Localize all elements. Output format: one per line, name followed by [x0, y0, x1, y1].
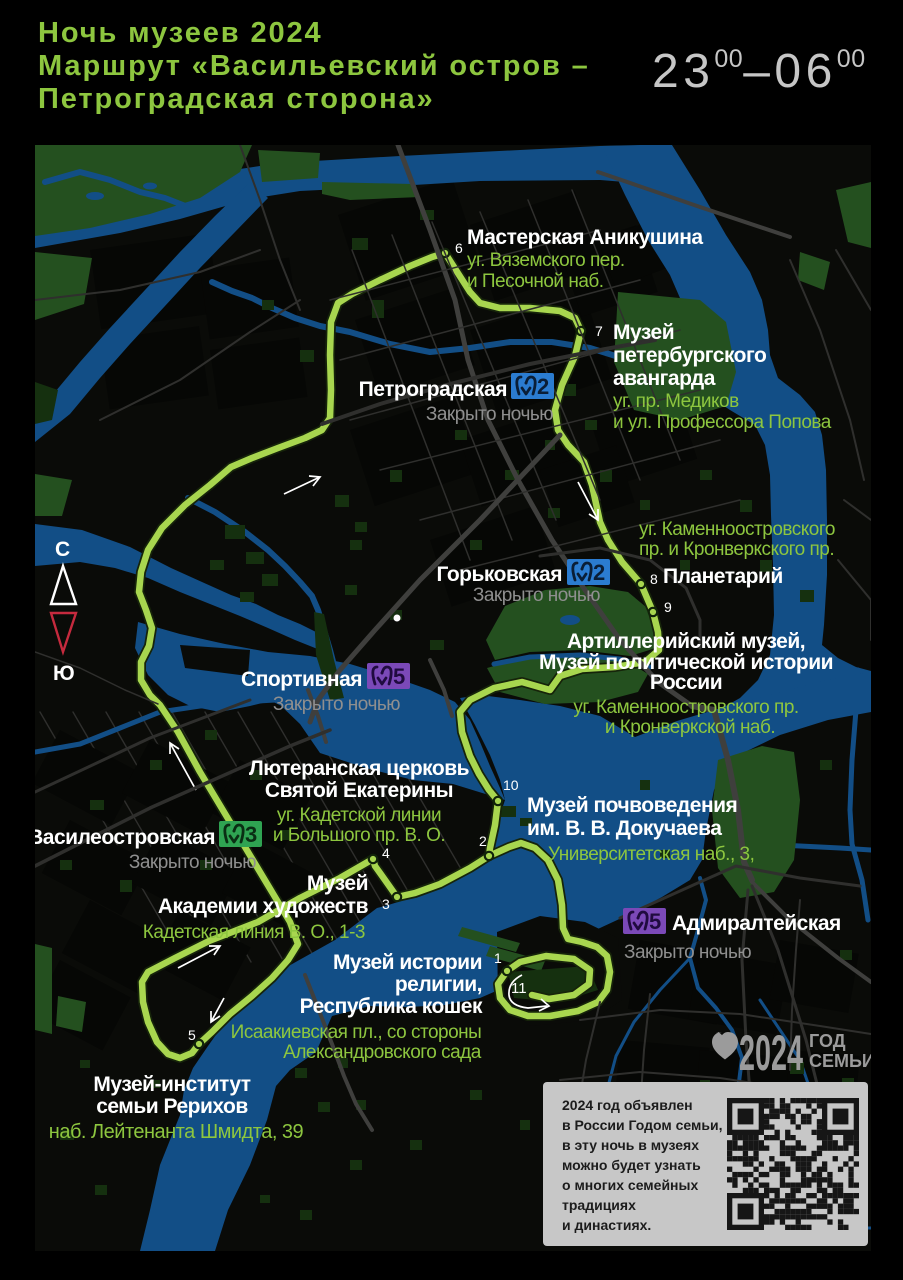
svg-text:6: 6 — [455, 240, 463, 256]
svg-text:Закрыто ночью: Закрыто ночью — [624, 942, 751, 963]
svg-text:петербургского: петербургского — [613, 344, 766, 367]
svg-text:10: 10 — [503, 777, 519, 793]
svg-text:СЕМЬИ: СЕМЬИ — [809, 1051, 871, 1071]
svg-text:Святой Екатерины: Святой Екатерины — [265, 779, 453, 802]
svg-text:России: России — [650, 671, 722, 694]
svg-text:в эту ночь в музеях: в эту ночь в музеях — [562, 1137, 699, 1153]
svg-text:и Песочной наб.: и Песочной наб. — [467, 271, 604, 292]
svg-text:авангарда: авангарда — [613, 367, 716, 390]
svg-text:7: 7 — [595, 323, 603, 339]
svg-text:уг. Каменноостровского пр.: уг. Каменноостровского пр. — [573, 697, 798, 718]
svg-text:и Большого пр. В. О.: и Большого пр. В. О. — [273, 825, 445, 846]
svg-text:уг. Вяземского пер.: уг. Вяземского пер. — [467, 250, 625, 271]
svg-text:Музей: Музей — [613, 321, 674, 344]
svg-text:11: 11 — [511, 980, 527, 997]
svg-text:уг. Каменноостровского: уг. Каменноостровского — [639, 519, 835, 540]
svg-text:Лютеранская церковь: Лютеранская церковь — [249, 757, 470, 780]
svg-text:ГОД: ГОД — [809, 1031, 846, 1051]
svg-text:Адмиралтейская: Адмиралтейская — [672, 912, 841, 935]
svg-text:Мастерская Аникушина: Мастерская Аникушина — [467, 226, 703, 249]
svg-text:о многих семейных: о многих семейных — [562, 1177, 698, 1193]
svg-text:Кадетская линия В. О., 1-3: Кадетская линия В. О., 1-3 — [143, 922, 365, 943]
svg-text:Горьковская: Горьковская — [437, 563, 563, 586]
svg-text:2: 2 — [479, 833, 487, 849]
svg-text:Закрыто ночью: Закрыто ночью — [473, 585, 600, 606]
svg-text:5: 5 — [649, 909, 661, 934]
svg-text:Университетская наб., 3,: Университетская наб., 3, — [548, 844, 754, 865]
svg-text:5: 5 — [393, 664, 405, 689]
svg-text:уг. пр. Медиков: уг. пр. Медиков — [613, 391, 739, 412]
svg-text:религии,: религии, — [395, 973, 482, 996]
svg-text:Музей почвоведения: Музей почвоведения — [527, 794, 737, 817]
svg-text:Закрыто ночью: Закрыто ночью — [129, 852, 256, 873]
svg-text:им. В. В. Докучаева: им. В. В. Докучаева — [527, 817, 722, 840]
svg-text:Исаакиевская пл., со стороны: Исаакиевская пл., со стороны — [231, 1022, 482, 1043]
svg-text:Александровского сада: Александровского сада — [283, 1042, 482, 1063]
svg-text:9: 9 — [664, 599, 672, 615]
svg-text:наб. Лейтенанта Шмидта, 39: наб. Лейтенанта Шмидта, 39 — [49, 1121, 304, 1143]
svg-text:и Кронверкской наб.: и Кронверкской наб. — [605, 717, 775, 738]
svg-text:в России Годом семьи,: в России Годом семьи, — [562, 1117, 722, 1133]
svg-text:5: 5 — [188, 1027, 196, 1043]
svg-text:Артиллерийский музей,: Артиллерийский музей, — [567, 630, 805, 653]
svg-text:3: 3 — [382, 896, 390, 912]
svg-text:Музей истории: Музей истории — [333, 951, 482, 974]
svg-text:4: 4 — [382, 845, 390, 861]
svg-text:традициях: традициях — [562, 1197, 636, 1213]
svg-text:2: 2 — [593, 560, 605, 585]
svg-text:8: 8 — [650, 571, 658, 587]
svg-text:С: С — [55, 538, 70, 561]
svg-text:Музей-институт: Музей-институт — [93, 1073, 250, 1096]
svg-text:1: 1 — [494, 950, 502, 966]
svg-text:Спортивная: Спортивная — [241, 668, 362, 691]
svg-text:семьи Рерихов: семьи Рерихов — [96, 1095, 248, 1118]
svg-text:2024: 2024 — [739, 1025, 803, 1081]
svg-text:Закрыто ночью: Закрыто ночью — [273, 694, 400, 715]
svg-text:Закрыто ночью: Закрыто ночью — [426, 404, 553, 425]
svg-text:и ул. Профессора Попова: и ул. Профессора Попова — [613, 412, 832, 433]
svg-text:Петроградская: Петроградская — [359, 378, 507, 401]
svg-text:2024 год объявлен: 2024 год объявлен — [562, 1097, 693, 1113]
svg-text:пр. и Кронверкского пр.: пр. и Кронверкского пр. — [639, 539, 834, 560]
svg-text:и династиях.: и династиях. — [562, 1217, 651, 1233]
svg-text:уг. Кадетской линии: уг. Кадетской линии — [277, 805, 441, 826]
svg-text:Планетарий: Планетарий — [663, 565, 783, 588]
svg-text:2: 2 — [537, 374, 549, 399]
svg-text:3: 3 — [245, 822, 257, 847]
svg-text:Музей: Музей — [307, 872, 368, 895]
svg-text:Республика кошек: Республика кошек — [300, 995, 483, 1018]
svg-text:можно будет узнать: можно будет узнать — [562, 1157, 701, 1173]
svg-text:Василеостровская: Василеостровская — [35, 826, 215, 849]
svg-text:Академии художеств: Академии художеств — [158, 895, 369, 918]
